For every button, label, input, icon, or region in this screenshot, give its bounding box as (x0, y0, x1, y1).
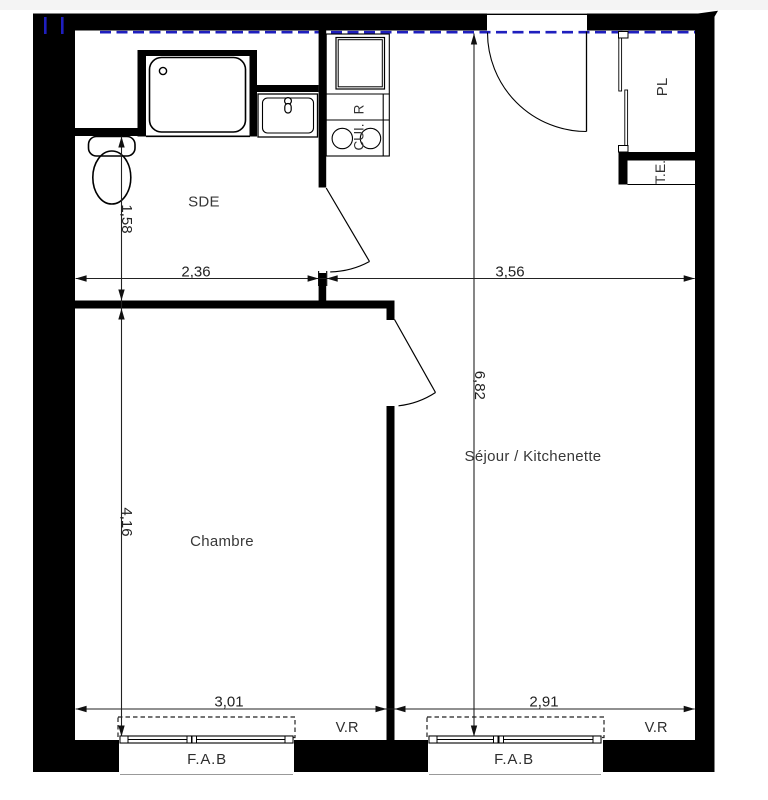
svg-text:2,36: 2,36 (181, 264, 210, 281)
svg-text:3,56: 3,56 (495, 264, 524, 281)
svg-text:1,58: 1,58 (118, 204, 135, 233)
svg-text:T.E.: T.E. (652, 160, 668, 184)
svg-text:2,91: 2,91 (529, 694, 558, 711)
svg-text:R: R (352, 104, 367, 114)
svg-text:4,16: 4,16 (118, 507, 135, 536)
svg-text:3,01: 3,01 (214, 694, 243, 711)
svg-text:PL: PL (654, 78, 671, 96)
svg-text:SDE: SDE (188, 194, 220, 211)
svg-text:V.R: V.R (336, 720, 359, 736)
svg-text:Séjour / Kitchenette: Séjour / Kitchenette (465, 448, 602, 465)
svg-text:F.A.B: F.A.B (494, 751, 534, 768)
svg-text:F.A.B: F.A.B (187, 751, 227, 768)
svg-text:CUI.: CUI. (351, 124, 366, 151)
svg-text:6,82: 6,82 (471, 371, 488, 400)
svg-text:V.R: V.R (645, 720, 668, 736)
svg-text:Chambre: Chambre (190, 533, 254, 550)
